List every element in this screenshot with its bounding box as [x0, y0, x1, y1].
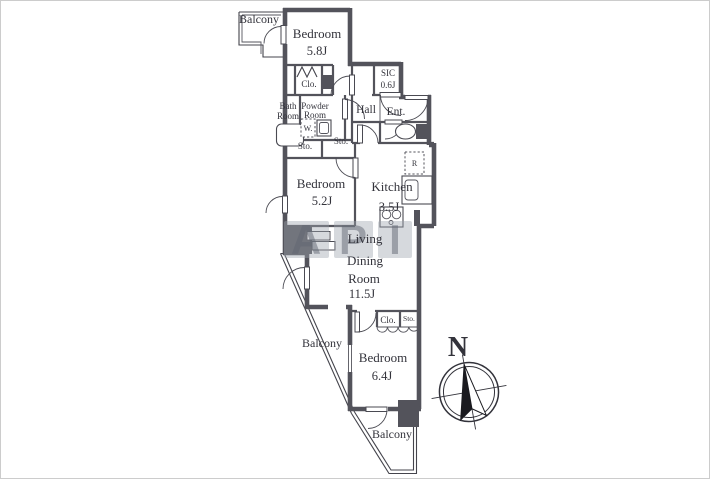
floor-plan-canvas: A P I Balcony Bedroom 5.8J Clo. Bath Roo… [0, 0, 710, 479]
bath-label-1: Bath [280, 101, 297, 111]
balcony-left-label: Balcony [302, 336, 342, 350]
living-label-1: Living [348, 231, 383, 246]
powder-label-2: Room [304, 110, 326, 120]
bedroom3-label: Bedroom [359, 350, 407, 365]
bedroom3-size: 6.4J [372, 369, 393, 383]
bedroom1-size: 5.8J [307, 44, 328, 58]
bedroom2-label: Bedroom [297, 176, 345, 191]
entrance-label: Ent. [387, 106, 406, 118]
balcony-top-label: Balcony [239, 12, 279, 26]
wall-stub-kitchen [414, 210, 420, 226]
bedroom1-label: Bedroom [293, 26, 341, 41]
living-label-2: Dining [347, 253, 384, 268]
pipe-space-block [322, 75, 334, 89]
hall-label: Hall [356, 104, 376, 116]
watermark-letter: A [291, 216, 321, 263]
sic-size: 0.6J [381, 80, 396, 90]
living-size: 11.5J [349, 287, 375, 301]
living-label-3: Room [348, 271, 380, 286]
refrigerator-label: R [412, 159, 418, 168]
toilet [396, 124, 428, 139]
balcony-bottom-label: Balcony [372, 427, 412, 441]
wall-block-bedroom3 [398, 400, 419, 427]
watermark-letter: I [389, 216, 401, 263]
storage1-label: Sto. [298, 141, 312, 151]
storage3-label: Sto. [403, 314, 415, 323]
closet2-label: Clo. [380, 315, 395, 325]
bedroom2-size: 5.2J [312, 194, 333, 208]
sic-label: SIC [381, 68, 395, 78]
powder-sink [317, 120, 331, 136]
closet1-label: Clo. [301, 79, 316, 89]
kitchen-label: Kitchen [371, 179, 413, 194]
kitchen-size: 3.5J [379, 200, 400, 214]
storage2-label: Sto. [334, 136, 348, 146]
bath-label-2: Room [277, 111, 299, 121]
floor-plan-page: A P I Balcony Bedroom 5.8J Clo. Bath Roo… [0, 0, 710, 479]
washer-label: W. [304, 124, 313, 133]
compass-north-label: N [448, 332, 468, 363]
